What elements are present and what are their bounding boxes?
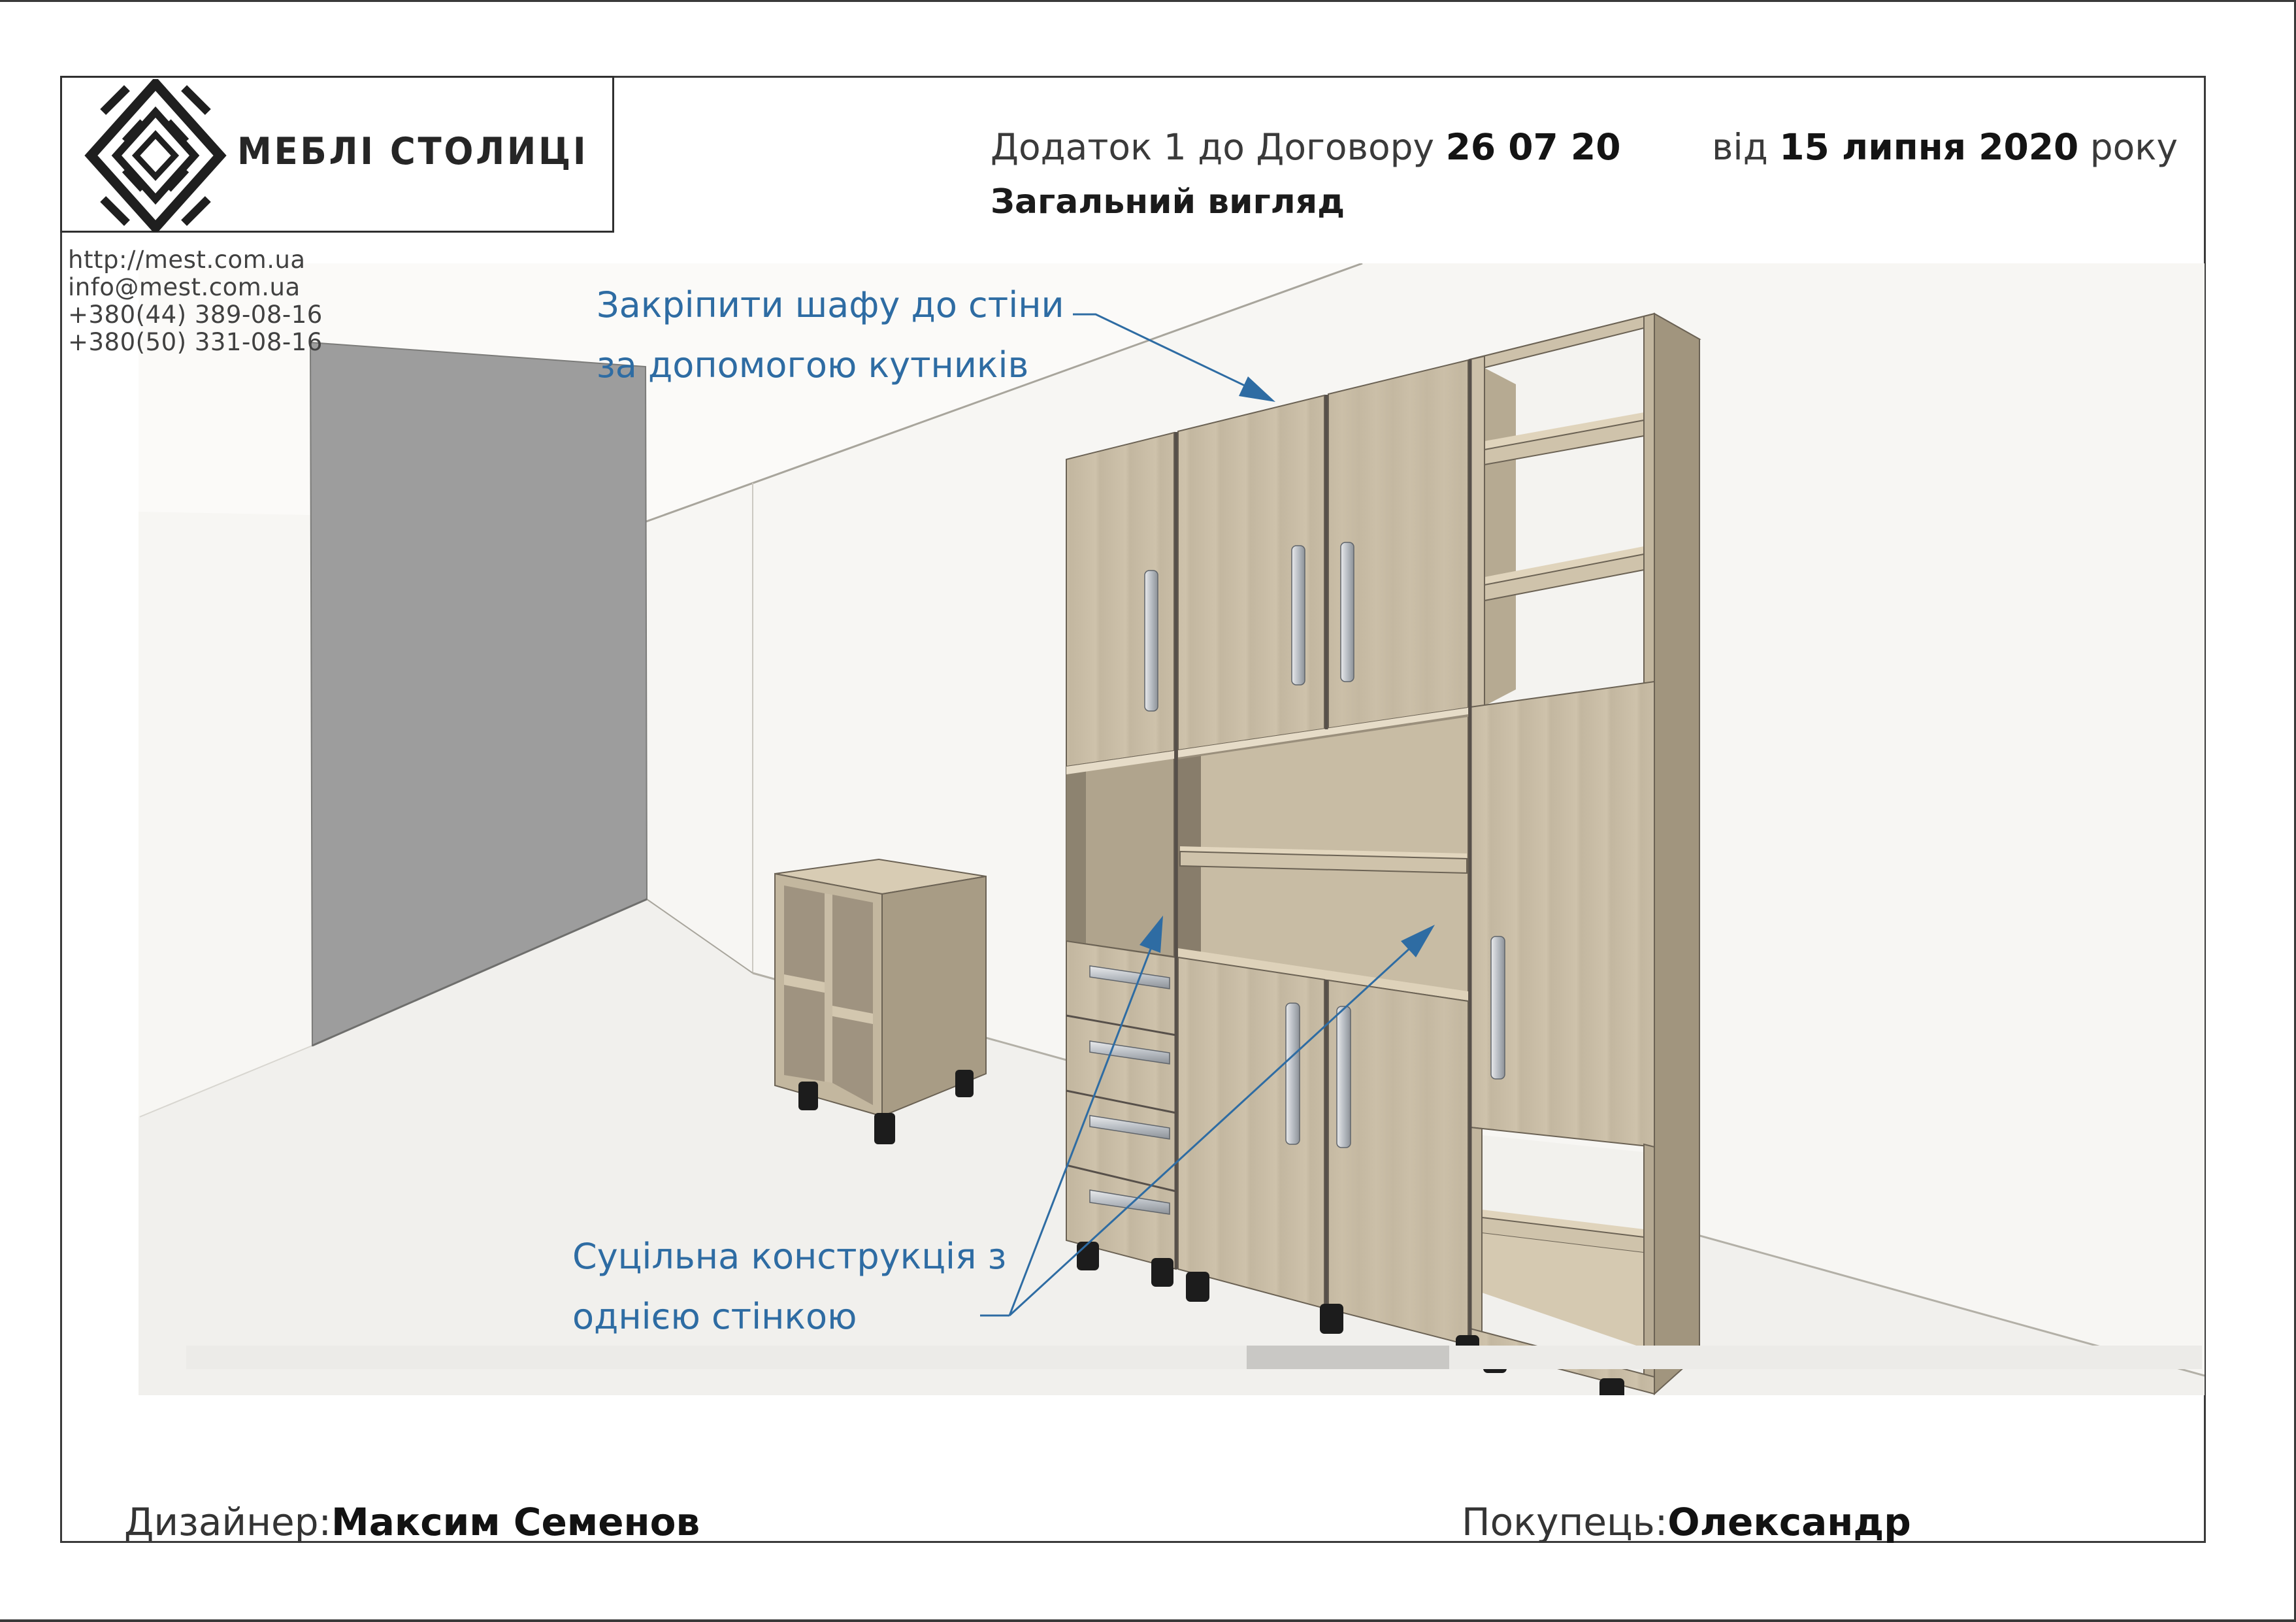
solid-note-line2: однією стінкою xyxy=(572,1287,1006,1347)
buyer-name: Олександр xyxy=(1667,1500,1911,1544)
buyer-credit: Покупець:Олександр xyxy=(1462,1500,1911,1544)
solid-construction-note: Суцільна конструкція з однією стінкою xyxy=(572,1227,1006,1347)
document-date: від 15 липня 2020 року xyxy=(1712,126,2178,168)
date-prefix: від xyxy=(1712,126,1768,168)
contact-block: http://mest.com.ua info@mest.com.ua +380… xyxy=(68,246,323,356)
design-sheet: МЕБЛІ СТОЛИЦІ http://mest.com.ua info@me… xyxy=(0,0,2296,1622)
scrollbar-track[interactable] xyxy=(186,1346,2202,1369)
email-link[interactable]: info@mest.com.ua xyxy=(68,274,323,301)
wardrobe-unit xyxy=(1066,314,1699,1395)
phone-number-1: +380(44) 389-08-16 xyxy=(68,301,323,329)
diamond-logo-icon xyxy=(80,79,231,232)
horizontal-scrollbar[interactable] xyxy=(186,1346,2202,1369)
document-title: Додаток 1 до Договору 26 07 20 xyxy=(991,126,1620,168)
buyer-label: Покупець: xyxy=(1462,1500,1667,1544)
date-suffix: року xyxy=(2090,126,2178,168)
contract-number: 26 07 20 xyxy=(1446,126,1621,168)
appendix-prefix: Додаток 1 до Договору xyxy=(991,126,1434,168)
view-subtitle: Загальний вигляд xyxy=(991,182,1345,222)
solid-note-line1: Суцільна конструкція з xyxy=(572,1227,1006,1287)
designer-label: Дизайнер: xyxy=(124,1500,331,1544)
fix-to-wall-note: Закріпити шафу до стіни за допомогою кут… xyxy=(597,275,1064,395)
room-render xyxy=(139,263,2205,1395)
designer-name: Максим Семенов xyxy=(331,1500,700,1544)
scrollbar-thumb[interactable] xyxy=(1247,1346,1449,1369)
brand-name: МЕБЛІ СТОЛИЦІ xyxy=(237,130,588,173)
fix-note-line1: Закріпити шафу до стіни xyxy=(597,275,1064,335)
date-value: 15 липня 2020 xyxy=(1779,126,2078,168)
phone-number-2: +380(50) 331-08-16 xyxy=(68,329,323,356)
fix-note-line2: за допомогою кутників xyxy=(597,335,1064,395)
furniture-render-viewport xyxy=(139,263,2205,1398)
logo-box: МЕБЛІ СТОЛИЦІ xyxy=(60,76,614,233)
website-link[interactable]: http://mest.com.ua xyxy=(68,246,323,274)
designer-credit: Дизайнер:Максим Семенов xyxy=(124,1500,700,1544)
